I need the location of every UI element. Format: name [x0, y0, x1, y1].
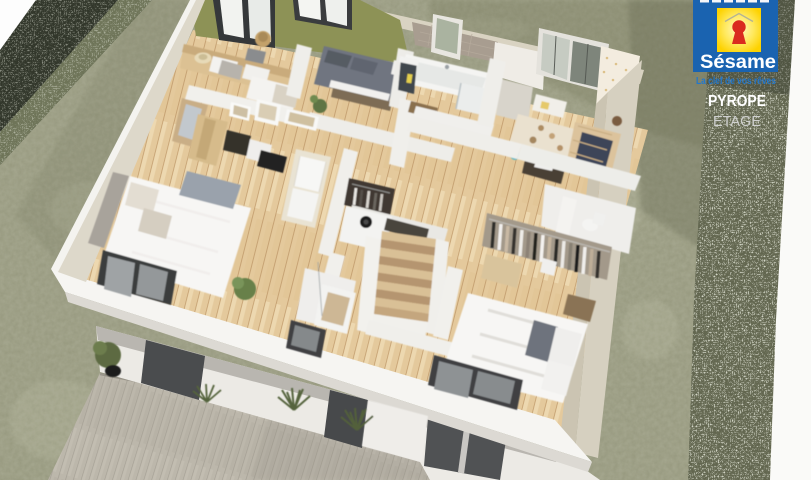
svg-text:La clef de vos rêves: La clef de vos rêves — [696, 76, 776, 87]
svg-text:Sésame: Sésame — [700, 52, 776, 73]
svg-text:ETAGE: ETAGE — [713, 114, 761, 130]
svg-text:PYROPE: PYROPE — [708, 93, 766, 110]
